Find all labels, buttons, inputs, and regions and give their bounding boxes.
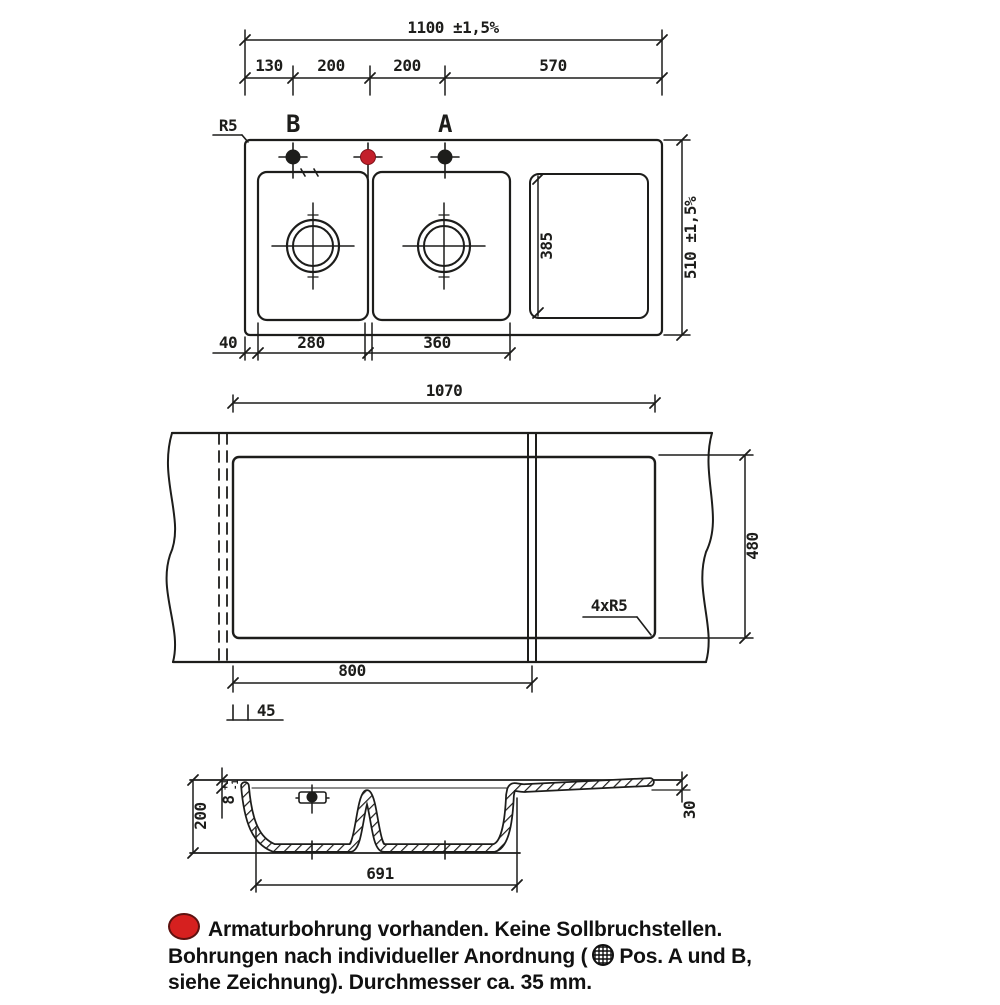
footer-line-2-post: Pos. A und B, bbox=[619, 945, 751, 968]
footer-line-2-pre: Bohrungen nach individueller Anordnung ( bbox=[168, 945, 587, 968]
dim-seg-130: 130 bbox=[255, 56, 282, 75]
red-dot-icon bbox=[168, 913, 200, 940]
dim-seg-200a: 200 bbox=[317, 56, 344, 75]
dim-seg-200b: 200 bbox=[393, 56, 420, 75]
footer-line-3: siehe Zeichnung). Durchmesser ca. 35 mm. bbox=[168, 970, 888, 996]
label-hole-a: A bbox=[438, 110, 453, 138]
sink-outline bbox=[245, 140, 662, 335]
svg-text:-1: -1 bbox=[231, 779, 241, 790]
dim-drainer-height: 385 bbox=[537, 232, 556, 259]
cutout-view: 1070 4xR5 480 800 bbox=[167, 381, 762, 720]
dim-edge-40: 40 bbox=[219, 333, 237, 352]
svg-text:+1: +1 bbox=[221, 779, 231, 790]
faucet-position-symbol bbox=[296, 785, 329, 813]
dim-cutout-height: 480 bbox=[743, 532, 762, 559]
dim-bowl-zone: 800 bbox=[338, 661, 365, 680]
label-r5: R5 bbox=[219, 116, 237, 135]
footer-line-1-text: Armaturbohrung vorhanden. Keine Sollbruc… bbox=[208, 918, 722, 941]
drain-left bbox=[272, 203, 354, 289]
dim-offset-45: 45 bbox=[257, 701, 275, 720]
dim-drainer-edge: 30 bbox=[680, 801, 699, 819]
hatched-circle-icon bbox=[591, 943, 615, 967]
label-hole-b: B bbox=[286, 110, 300, 138]
dim-total-width: 1100 ±1,5% bbox=[407, 18, 499, 37]
footer-line-1: Armaturbohrung vorhanden. Keine Sollbruc… bbox=[168, 913, 888, 943]
svg-text:8: 8 bbox=[219, 795, 238, 804]
technical-drawing-canvas: 1100 ±1,5% 130 200 200 570 R5 B A bbox=[0, 0, 1000, 1000]
dim-bowl1-280: 280 bbox=[297, 333, 324, 352]
footer-line-2: Bohrungen nach individueller Anordnung (… bbox=[168, 943, 888, 970]
dim-bowl2-360: 360 bbox=[423, 333, 450, 352]
dim-seg-570: 570 bbox=[539, 56, 566, 75]
drain-right bbox=[403, 203, 485, 289]
plan-view: 1100 ±1,5% 130 200 200 570 R5 B A bbox=[213, 18, 700, 360]
dim-cutout-width: 1070 bbox=[426, 381, 463, 400]
label-corner-radius: 4xR5 bbox=[591, 596, 628, 615]
break-line-left bbox=[167, 433, 176, 662]
break-line-right bbox=[702, 433, 713, 662]
dim-total-height: 510 ±1,5% bbox=[681, 196, 700, 279]
footer-note: Armaturbohrung vorhanden. Keine Sollbruc… bbox=[168, 913, 888, 996]
section-view: 200 8 +1 -1 691 bbox=[188, 768, 699, 892]
dim-bowls-width: 691 bbox=[366, 864, 393, 883]
dim-depth-200: 200 bbox=[191, 802, 210, 829]
